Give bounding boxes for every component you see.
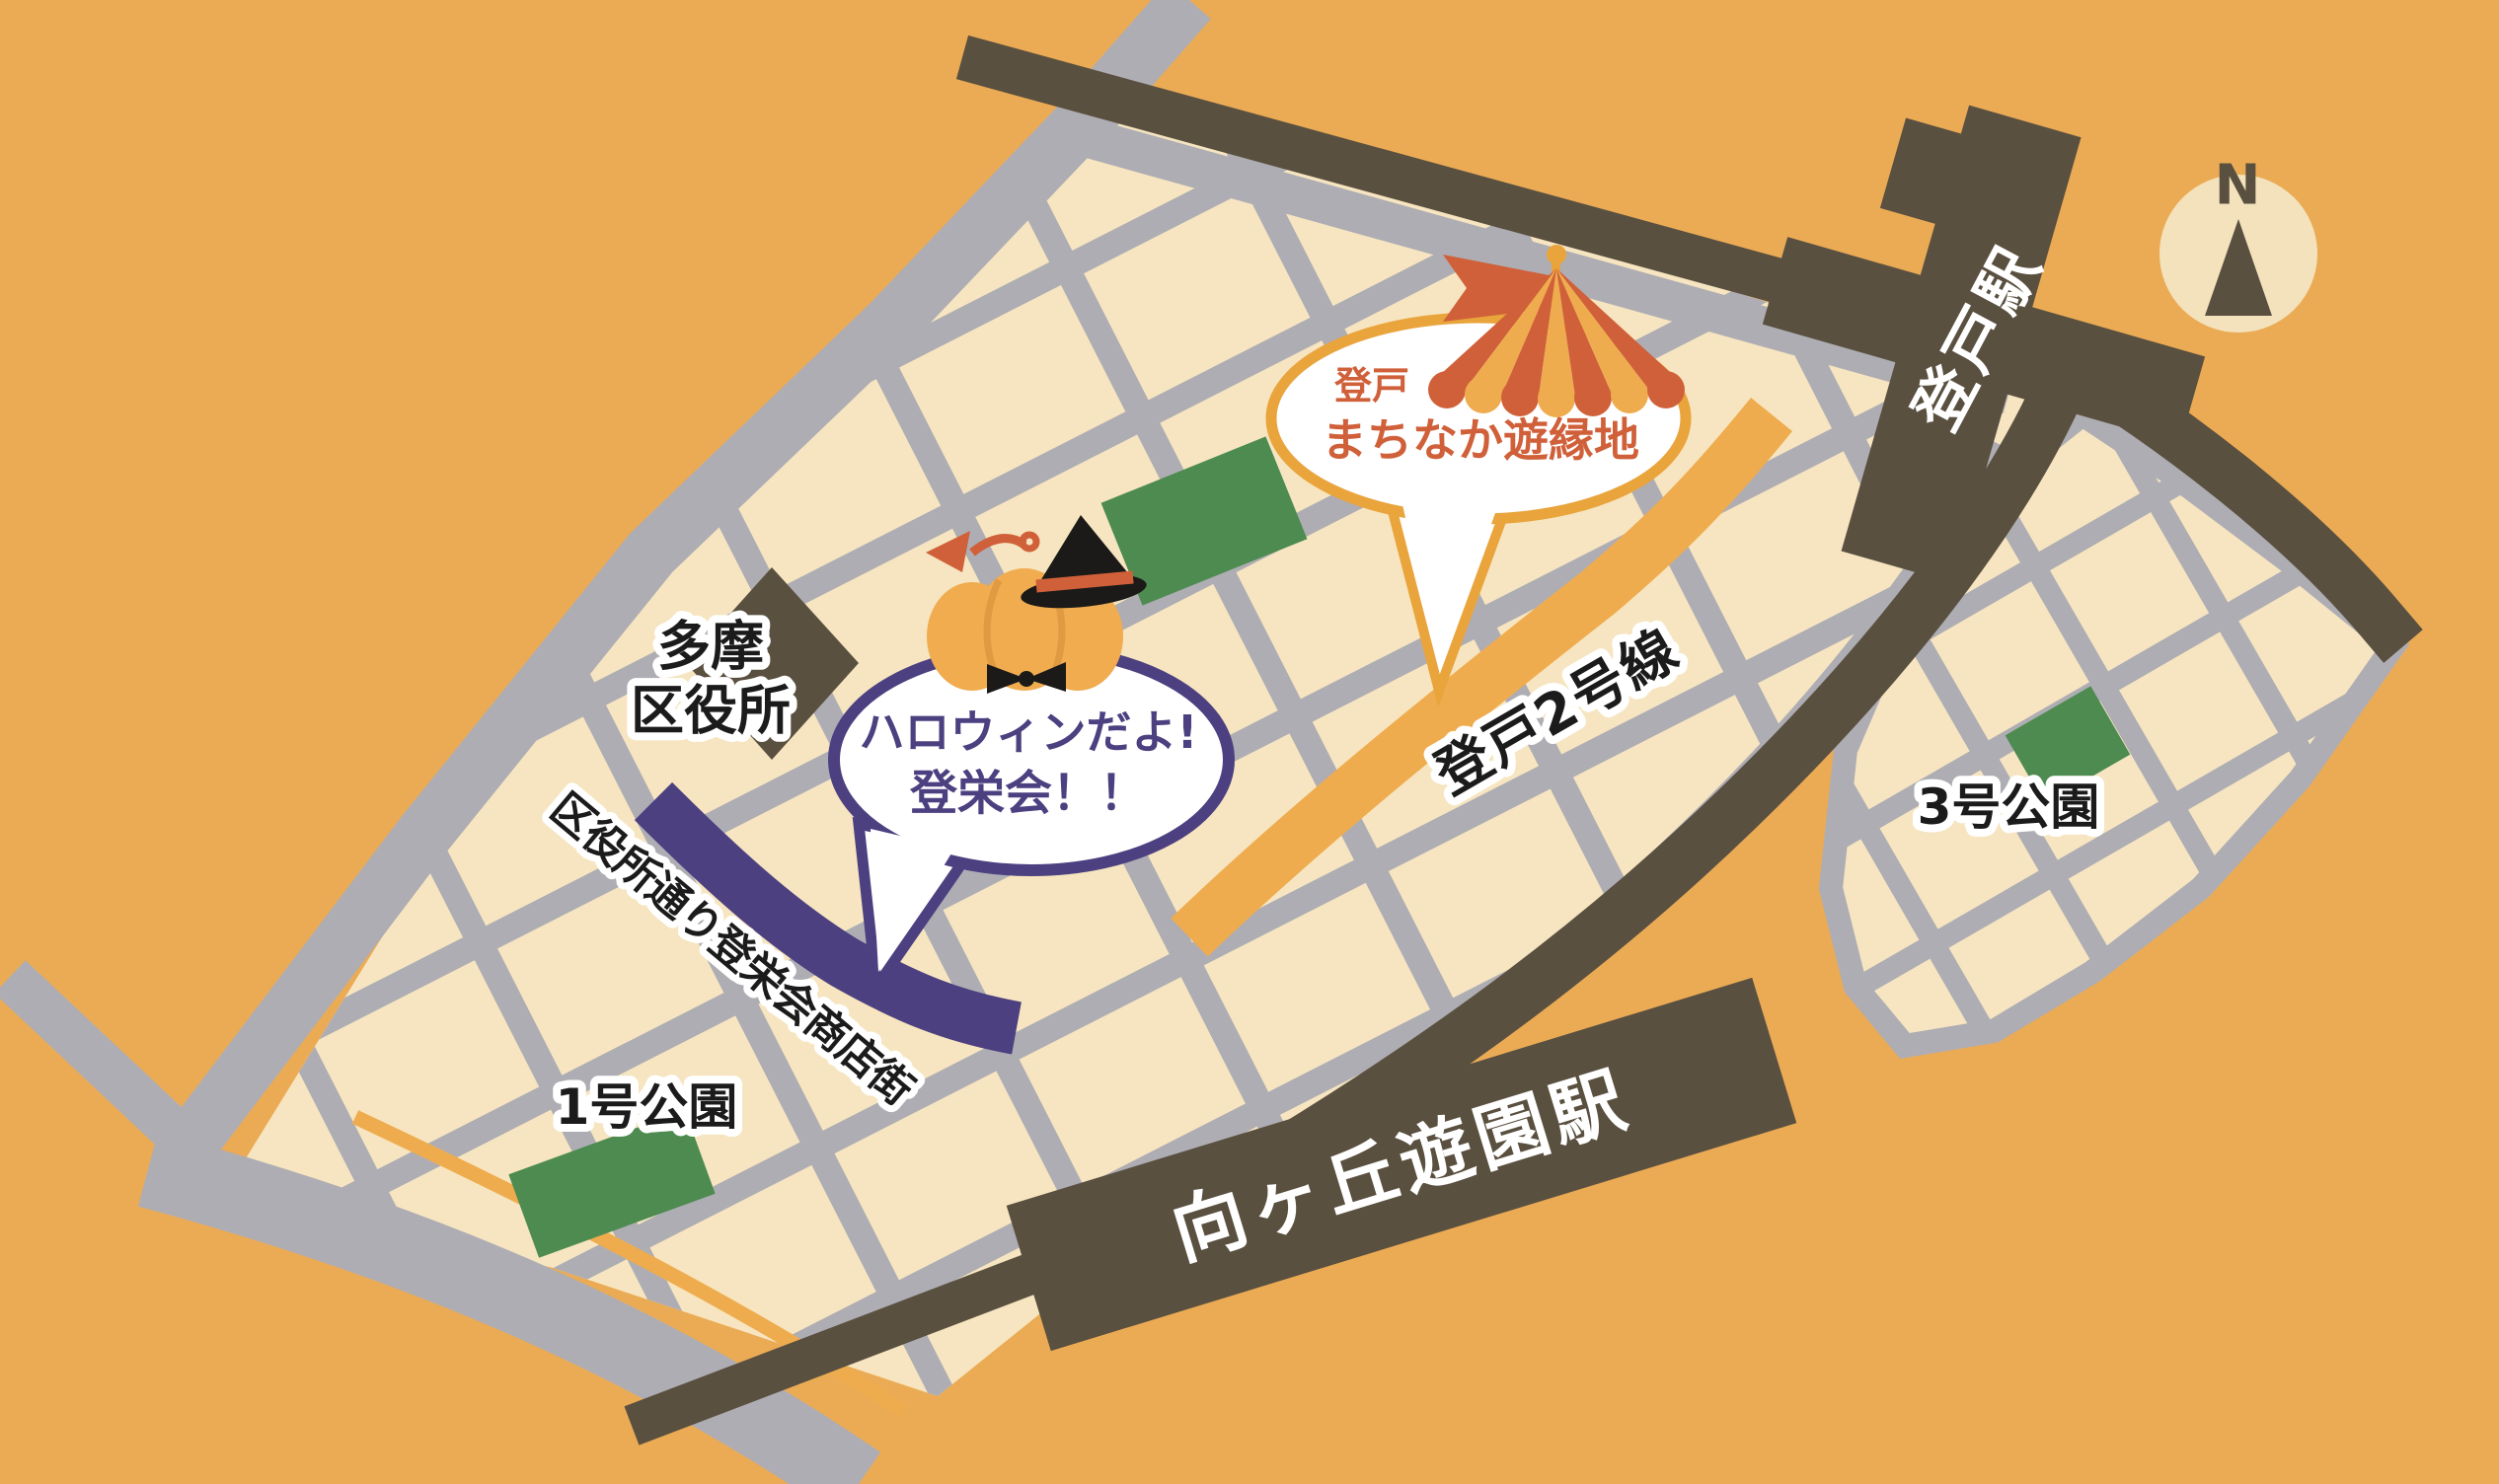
map-stage: 登戸駅 向ヶ丘遊園駅 多摩 区役所 1号公園 3号公園 区役所通り登栄会商店街 … <box>0 0 2499 1484</box>
ward-office-label-line1: 多摩 <box>657 616 764 678</box>
park-1-label: 1号公園 <box>556 1078 738 1136</box>
park-3-label: 3号公園 <box>1918 779 2100 836</box>
halloween-callout-line2: 登栄会！！ <box>909 766 1147 821</box>
illustrated-map: 登戸駅 向ヶ丘遊園駅 多摩 区役所 1号公園 3号公園 区役所通り登栄会商店街 … <box>0 0 2499 1484</box>
ward-office-label-line2: 区役所 <box>631 680 791 742</box>
compass-north-label: N <box>2215 154 2261 218</box>
halloween-callout-line1: ハロウィンだよ! <box>860 705 1198 759</box>
machinaka-callout-line2: まちなか遊縁地 <box>1322 413 1639 467</box>
machinaka-callout-line1: 登戸 <box>1333 364 1409 408</box>
